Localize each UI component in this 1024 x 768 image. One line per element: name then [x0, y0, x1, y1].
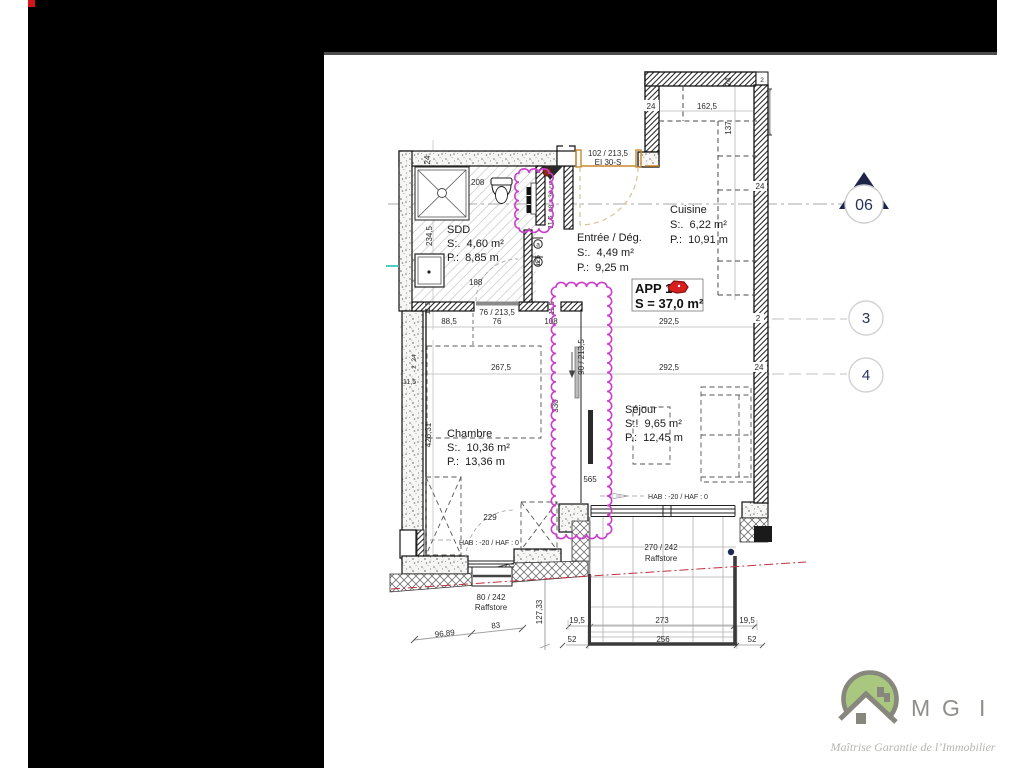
svg-text:267,5: 267,5 — [491, 363, 512, 372]
svg-text:4: 4 — [862, 367, 870, 384]
svg-text:270 / 242: 270 / 242 — [644, 543, 678, 552]
svg-text:P.: 8,85 m: P.: 8,85 m — [447, 252, 499, 264]
svg-text:Raffstore: Raffstore — [475, 603, 508, 612]
svg-text:125: 125 — [535, 255, 542, 267]
svg-text:a: a — [536, 242, 540, 249]
svg-text:2: 2 — [411, 365, 418, 369]
svg-text:24: 24 — [755, 363, 764, 372]
svg-text:24: 24 — [756, 182, 765, 191]
svg-text:S:. 4,49 m²: S:. 4,49 m² — [577, 247, 634, 259]
svg-text:273: 273 — [655, 616, 669, 625]
svg-text:Chambre: Chambre — [447, 428, 492, 440]
svg-text:127,33: 127,33 — [535, 599, 544, 624]
svg-text:88,5: 88,5 — [441, 317, 457, 326]
svg-text:HAB : -20 / HAF : 0: HAB : -20 / HAF : 0 — [459, 540, 519, 547]
svg-text:Entrée / Dég.: Entrée / Dég. — [577, 232, 642, 244]
svg-text:I: I — [979, 695, 985, 721]
svg-text:52: 52 — [748, 635, 757, 644]
svg-text:APP 1: APP 1 — [635, 281, 672, 296]
svg-text:229: 229 — [483, 513, 497, 522]
svg-text:P.: 12,45 m: P.: 12,45 m — [625, 432, 683, 444]
svg-text:3: 3 — [862, 310, 870, 327]
svg-text:Cuisine: Cuisine — [670, 204, 707, 216]
svg-text:11,5: 11,5 — [403, 379, 416, 386]
svg-text:2: 2 — [756, 314, 761, 323]
svg-text:EI 30-S: EI 30-S — [595, 158, 622, 167]
svg-text:292,5: 292,5 — [659, 363, 680, 372]
svg-text:24: 24 — [423, 155, 432, 164]
svg-text:S:! 9,65 m²: S:! 9,65 m² — [625, 418, 682, 430]
svg-text:2: 2 — [760, 77, 764, 84]
svg-text:G: G — [942, 695, 960, 721]
svg-text:292,5: 292,5 — [659, 317, 680, 326]
svg-text:102 / 213,5: 102 / 213,5 — [588, 149, 629, 158]
svg-text:208: 208 — [471, 178, 485, 187]
svg-text:M: M — [911, 695, 930, 721]
svg-text:24: 24 — [647, 102, 656, 111]
svg-text:426,31: 426,31 — [424, 422, 433, 447]
svg-text:52: 52 — [568, 635, 577, 644]
svg-text:Raffstore: Raffstore — [645, 554, 678, 563]
svg-text:76: 76 — [493, 317, 502, 326]
svg-text:234,5: 234,5 — [425, 225, 434, 246]
svg-text:06: 06 — [855, 197, 873, 214]
svg-text:P.: 10,91 m: P.: 10,91 m — [670, 234, 728, 246]
svg-text:24: 24 — [724, 77, 733, 86]
svg-text:P.: 9,25 m: P.: 9,25 m — [577, 262, 629, 274]
svg-text:SDD: SDD — [447, 224, 470, 236]
svg-text:188: 188 — [469, 278, 483, 287]
svg-text:90 / 213,5: 90 / 213,5 — [577, 339, 586, 375]
svg-text:Maîtrise Garantie de l’Immobil: Maîtrise Garantie de l’Immobilier — [830, 740, 996, 754]
svg-text:137: 137 — [724, 121, 733, 135]
svg-text:HAB : -20 / HAF : 0: HAB : -20 / HAF : 0 — [648, 494, 708, 501]
svg-text:24: 24 — [411, 354, 418, 362]
svg-text:162,5: 162,5 — [697, 102, 718, 111]
svg-text:76 / 213,5: 76 / 213,5 — [479, 308, 515, 317]
svg-text:S:. 6,22 m²: S:. 6,22 m² — [670, 219, 727, 231]
svg-text:83: 83 — [491, 621, 501, 631]
svg-text:11,5: 11,5 — [425, 301, 432, 314]
svg-text:Séjour: Séjour — [625, 404, 657, 416]
svg-text:P.: 13,36 m: P.: 13,36 m — [447, 456, 505, 468]
svg-text:19,5: 19,5 — [569, 616, 585, 625]
svg-text:19,5: 19,5 — [739, 616, 755, 625]
svg-text:80 / 242: 80 / 242 — [477, 593, 506, 602]
svg-text:565: 565 — [583, 475, 597, 484]
svg-text:S:. 4,60 m²: S:. 4,60 m² — [447, 238, 504, 250]
svg-text:256: 256 — [656, 635, 670, 644]
svg-text:S = 37,0 m²: S = 37,0 m² — [635, 296, 704, 311]
svg-text:S:. 10,36 m²: S:. 10,36 m² — [447, 442, 510, 454]
